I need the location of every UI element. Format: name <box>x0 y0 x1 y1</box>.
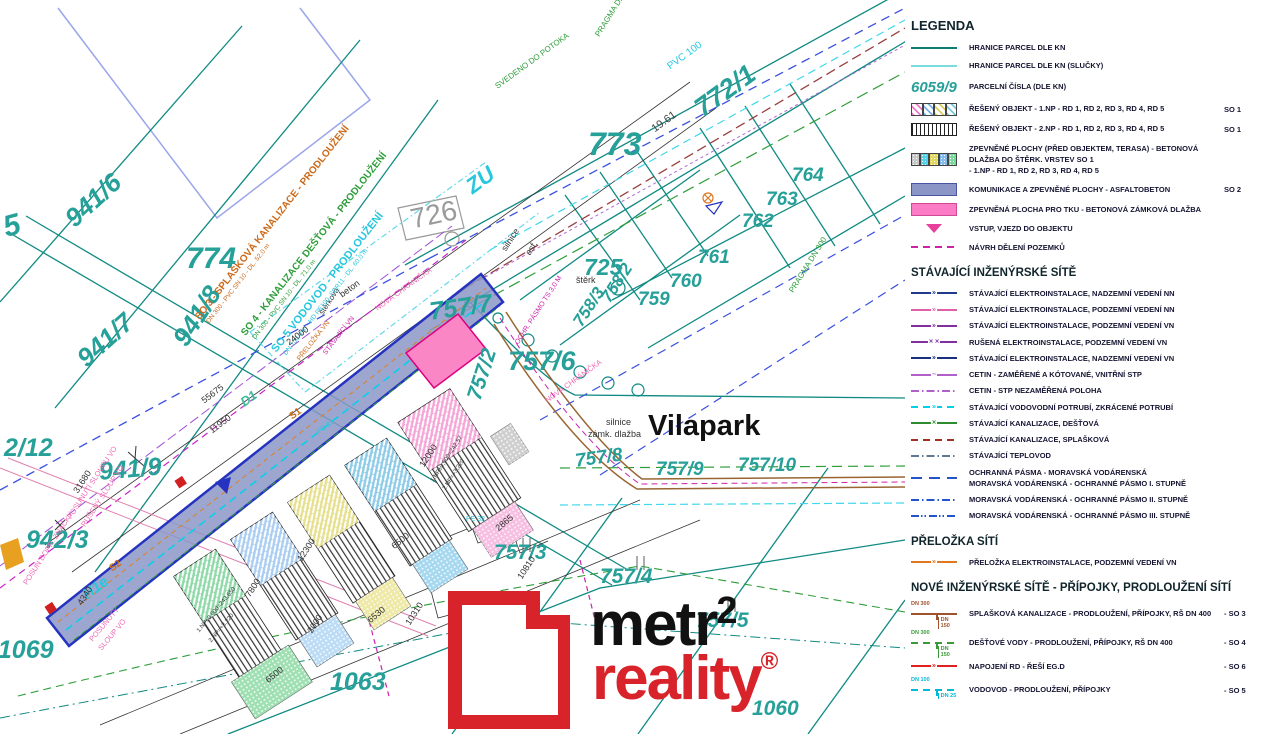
legend-label: STÁVAJÍCÍ VODOVODNÍ POTRUBÍ, ZKRÁCENÉ PO… <box>969 402 1224 413</box>
metr2-reality-logo: metr2 reality® <box>440 585 910 734</box>
legend-label: VSTUP, VJEZD DO OBJEKTU <box>969 223 1224 234</box>
legend-row: OCHRANNÁ PÁSMA - MORAVSKÁ VODÁRENSKÁMORA… <box>911 467 1270 490</box>
legend-swatch-tee_green: DN 300DN 150 <box>911 632 957 654</box>
legend-label: SPLAŠKOVÁ KANALIZACE - PRODLOUŽENÍ, PŘÍP… <box>969 608 1224 619</box>
logo-registered-mark: ® <box>761 648 779 675</box>
logo-word-reality: reality® <box>592 643 778 714</box>
legend-label: STÁVAJÍCÍ ELEKTROINSTALACE, NADZEMNÍ VED… <box>969 288 1224 299</box>
legend-swatch-line_parcel <box>911 47 957 49</box>
dn-label-top: DN 300 <box>911 630 930 636</box>
legend-section-header: PŘELOŽKA SÍTÍ <box>911 536 1270 548</box>
legend-label: VODOVOD - PRODLOUŽENÍ, PŘÍPOJKY <box>969 684 1224 695</box>
legend-row: MORAVSKÁ VODÁRENSKÁ - OCHRANNÉ PÁSMO III… <box>911 510 1270 521</box>
legend-line-symbol: » <box>931 663 937 670</box>
legend-swatch-vn_nadzemni: » <box>911 357 957 359</box>
legend-row: DN 100DN 25VODOVOD - PRODLOUŽENÍ, PŘÍPOJ… <box>911 679 1270 701</box>
legend-swatch-cetin_nez <box>911 390 957 392</box>
legend-label: STÁVAJÍCÍ TEPLOVOD <box>969 450 1224 461</box>
legend-so-code: - SO 3 <box>1224 609 1270 618</box>
legend-swatch-parcel_number: 6059/9 <box>911 79 957 96</box>
dn-label-top: DN 300 <box>911 601 930 607</box>
legend-swatch-nn_nadzemni: » <box>911 292 957 294</box>
legend-swatch-nn_podzemni: » <box>911 309 957 311</box>
dn-label-bottom: DN 150 <box>938 646 957 658</box>
legend-row: CETIN - STP NEZAMĚŘENÁ POLOHA <box>911 385 1270 396</box>
legend-swatch-pasmo3 <box>911 515 957 517</box>
legend-row: DN 300DN 150DEŠŤOVÉ VODY - PRODLOUŽENÍ, … <box>911 632 1270 654</box>
legend-section-header: NOVÉ INŽENÝRSKÉ SÍTĚ - PŘÍPOJKY, PRODLOU… <box>911 582 1270 594</box>
legend-label: HRANICE PARCEL DLE KN <box>969 42 1224 53</box>
legend-row: VSTUP, VJEZD DO OBJEKTU <box>911 223 1270 234</box>
legend-so-code: - SO 6 <box>1224 662 1270 671</box>
legend-swatch-vodovod: » <box>911 406 957 408</box>
legend-label: OCHRANNÁ PÁSMA - MORAVSKÁ VODÁRENSKÁMORA… <box>969 467 1224 490</box>
legend-section-header: STÁVAJÍCÍ INŽENÝRSKÉ SÍTĚ <box>911 267 1270 279</box>
legend-so-code: - SO 4 <box>1224 638 1270 647</box>
legend-row: ZPEVNĚNÁ PLOCHA PRO TKU - BETONOVÁ ZÁMKO… <box>911 203 1270 216</box>
legend-label: STÁVAJÍCÍ KANALIZACE, DEŠŤOVÁ <box>969 418 1224 429</box>
legend-swatch-teplovod <box>911 455 957 457</box>
legend-row: »STÁVAJÍCÍ ELEKTROINSTALACE, PODZEMNÍ VE… <box>911 304 1270 315</box>
legend-row: HRANICE PARCEL DLE KN <box>911 42 1270 53</box>
legend-row: MORAVSKÁ VODÁRENSKÁ - OCHRANNÉ PÁSMO II.… <box>911 494 1270 505</box>
legend-swatch-pasmo1 <box>911 477 957 479</box>
legend-so-code: - SO 5 <box>1224 686 1270 695</box>
legend-row: »STÁVAJÍCÍ VODOVODNÍ POTRUBÍ, ZKRÁCENÉ P… <box>911 402 1270 413</box>
legend-label: MORAVSKÁ VODÁRENSKÁ - OCHRANNÉ PÁSMO III… <box>969 510 1224 521</box>
legend-swatch-kanal_dest: × <box>911 422 957 424</box>
entrance-triangle-icon <box>926 224 942 233</box>
legend-title: LEGENDA <box>911 18 1270 33</box>
legend-row: HRANICE PARCEL DLE KN (SLUČKY) <box>911 60 1270 71</box>
legend-row: ŘEŠENÝ OBJEKT - 1.NP - RD 1, RD 2, RD 3,… <box>911 103 1270 116</box>
legend-swatch-pasmo2 <box>911 499 957 501</box>
legend-swatch-tee_brown: DN 300DN 150 <box>911 603 957 625</box>
legend-swatch-tee_cyan: DN 100DN 25 <box>911 679 957 701</box>
legend-row: 6059/9PARCELNÍ ČÍSLA (DLE KN) <box>911 79 1270 96</box>
legend-line-symbol: × <box>931 420 937 427</box>
legend-panel: LEGENDA HRANICE PARCEL DLE KNHRANICE PAR… <box>905 0 1274 734</box>
legend-label: ZPEVNĚNÁ PLOCHA PRO TKU - BETONOVÁ ZÁMKO… <box>969 204 1224 215</box>
legend-row: ×STÁVAJÍCÍ KANALIZACE, DEŠŤOVÁ <box>911 418 1270 429</box>
legend-row: »STÁVAJÍCÍ ELEKTROINSTALACE, NADZEMNÍ VE… <box>911 288 1270 299</box>
legend-row: ŘEŠENÝ OBJEKT - 2.NP - RD 1, RD 2, RD 3,… <box>911 123 1270 136</box>
legend-row: »NAPOJENÍ RD - ŘEŠÍ EG.D- SO 6 <box>911 661 1270 672</box>
legend-row: ~CETIN - ZAMĚŘENÉ A KÓTOVANÉ, VNITŘNÍ ST… <box>911 369 1270 380</box>
legend-label: MORAVSKÁ VODÁRENSKÁ - OCHRANNÉ PÁSMO II.… <box>969 494 1224 505</box>
legend-label: RUŠENÁ ELEKTROINSTALACE, PODZEMNÍ VEDENÍ… <box>969 337 1224 348</box>
parcel-outline-topleft <box>58 8 370 218</box>
legend-so-code: SO 1 <box>1224 125 1270 134</box>
legend-row: »STÁVAJÍCÍ ELEKTROINSTALACE, NADZEMNÍ VE… <box>911 353 1270 364</box>
legend-label: STÁVAJÍCÍ ELEKTROINSTALACE, NADZEMNÍ VED… <box>969 353 1224 364</box>
legend-swatch-prelozka: » <box>911 561 957 563</box>
legend-line-symbol: » <box>931 306 937 313</box>
legend-label: KOMUNIKACE A ZPEVNĚNÉ PLOCHY - ASFALTOBE… <box>969 184 1224 195</box>
legend-line-symbol: » <box>931 322 937 329</box>
legend-line-symbol: » <box>931 290 937 297</box>
legend-label: STÁVAJÍCÍ ELEKTROINSTALACE, PODZEMNÍ VED… <box>969 320 1224 331</box>
logo-sup-2: 2 <box>716 590 737 632</box>
legend-row: STÁVAJÍCÍ TEPLOVOD <box>911 450 1270 461</box>
legend-label: NAPOJENÍ RD - ŘEŠÍ EG.D <box>969 661 1224 672</box>
legend-row: × ×RUŠENÁ ELEKTROINSTALACE, PODZEMNÍ VED… <box>911 337 1270 348</box>
legend-line-symbol: » <box>931 404 937 411</box>
legend-label: STÁVAJÍCÍ KANALIZACE, SPLAŠKOVÁ <box>969 434 1224 445</box>
dn-label-top: DN 100 <box>911 677 930 683</box>
legend-swatch-line_red: » <box>911 665 957 667</box>
legend-label: NÁVRH DĚLENÍ POZEMKŮ <box>969 242 1224 253</box>
legend-swatch-hatch_multi <box>911 103 957 116</box>
legend-line-symbol: × × <box>928 339 940 346</box>
legend-swatch-solid_pink <box>911 203 957 216</box>
legend-swatch-triangle_pink <box>911 224 957 233</box>
legend-line-symbol: » <box>931 355 937 362</box>
legend-swatch-solid_periwinkle <box>911 183 957 196</box>
dn-label-bottom: DN 25 <box>938 693 957 699</box>
legend-label: ZPEVNĚNÉ PLOCHY (PŘED OBJEKTEM, TERASA) … <box>969 143 1224 177</box>
legend-swatch-stripes <box>911 123 957 136</box>
legend-swatch-line_parcel_slucky <box>911 65 957 67</box>
legend-label: DEŠŤOVÉ VODY - PRODLOUŽENÍ, PŘÍPOJKY, RŠ… <box>969 637 1224 648</box>
legend-row: ZPEVNĚNÉ PLOCHY (PŘED OBJEKTEM, TERASA) … <box>911 143 1270 177</box>
legend-label: PARCELNÍ ČÍSLA (DLE KN) <box>969 81 1224 92</box>
legend-row: STÁVAJÍCÍ KANALIZACE, SPLAŠKOVÁ <box>911 434 1270 445</box>
dn-label-bottom: DN 150 <box>938 617 957 629</box>
legend-label: ŘEŠENÝ OBJEKT - 1.NP - RD 1, RD 2, RD 3,… <box>969 103 1224 114</box>
legend-line-symbol: ~ <box>931 371 937 378</box>
legend-swatch-vn_rusena: × × <box>911 341 957 343</box>
legend-swatch-vn_podzemni: » <box>911 325 957 327</box>
legend-row: KOMUNIKACE A ZPEVNĚNÉ PLOCHY - ASFALTOBE… <box>911 183 1270 196</box>
legend-groups: HRANICE PARCEL DLE KNHRANICE PARCEL DLE … <box>911 42 1270 701</box>
legend-swatch-dash_magenta <box>911 246 957 248</box>
legend-label: CETIN - STP NEZAMĚŘENÁ POLOHA <box>969 385 1224 396</box>
legend-row: DN 300DN 150SPLAŠKOVÁ KANALIZACE - PRODL… <box>911 603 1270 625</box>
legend-so-code: SO 2 <box>1224 185 1270 194</box>
legend-swatch-cetin: ~ <box>911 374 957 376</box>
site-plan-page: 5941/6941/7941/87742/12941/9942/34106910… <box>0 0 1274 734</box>
legend-label: STÁVAJÍCÍ ELEKTROINSTALACE, PODZEMNÍ VED… <box>969 304 1224 315</box>
legend-row: NÁVRH DĚLENÍ POZEMKŮ <box>911 242 1270 253</box>
legend-label: PŘELOŽKA ELEKTROINSTALACE, PODZEMNÍ VEDE… <box>969 557 1224 568</box>
legend-row: »PŘELOŽKA ELEKTROINSTALACE, PODZEMNÍ VED… <box>911 557 1270 568</box>
legend-row: »STÁVAJÍCÍ ELEKTROINSTALACE, PODZEMNÍ VE… <box>911 320 1270 331</box>
logo-house-icon <box>440 585 570 734</box>
legend-label: ŘEŠENÝ OBJEKT - 2.NP - RD 1, RD 2, RD 3,… <box>969 123 1224 134</box>
legend-line-symbol: » <box>931 559 937 566</box>
legend-swatch-kanal_splask <box>911 439 957 441</box>
legend-swatch-dots_multi <box>911 153 957 166</box>
legend-label: HRANICE PARCEL DLE KN (SLUČKY) <box>969 60 1224 71</box>
legend-so-code: SO 1 <box>1224 105 1270 114</box>
legend-label: CETIN - ZAMĚŘENÉ A KÓTOVANÉ, VNITŘNÍ STP <box>969 369 1224 380</box>
